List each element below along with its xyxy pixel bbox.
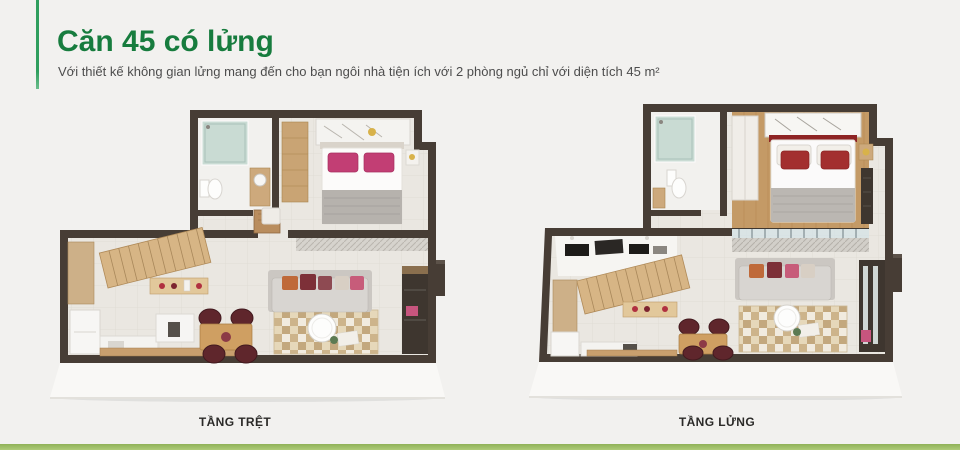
wood-bar	[587, 350, 677, 356]
shower-head	[206, 125, 210, 129]
dining-chair	[203, 345, 225, 363]
wall-cabinet	[68, 242, 94, 304]
ottoman	[262, 208, 280, 224]
open-book	[337, 331, 359, 347]
sofa-pillow	[767, 262, 782, 278]
floorplan-page: Căn 45 có lửng Với thiết kế không gian l…	[0, 0, 960, 450]
sofa-pillow	[801, 264, 815, 278]
dining-chair	[235, 345, 257, 363]
ground-floor-label: TẦNG TRỆT	[155, 415, 315, 429]
lamp	[409, 154, 415, 160]
centerpiece	[221, 332, 231, 342]
centerpiece	[699, 340, 707, 348]
understair-shelf	[623, 302, 677, 317]
toilet	[208, 179, 222, 199]
curtain-band	[296, 238, 428, 251]
sofa-pillow	[749, 264, 764, 278]
ac-ledge	[893, 254, 902, 292]
page-title: Căn 45 có lửng	[57, 26, 917, 58]
vanity	[653, 188, 665, 208]
pillow-left	[328, 153, 358, 172]
vase	[330, 336, 338, 344]
shower-head	[659, 120, 663, 124]
ground-floor-plan-drawing	[50, 110, 445, 402]
pillow-right	[364, 153, 394, 172]
bathroom	[651, 112, 720, 210]
fridge	[551, 332, 579, 356]
mezzanine-railing	[732, 227, 869, 238]
toilet	[672, 178, 686, 198]
ground-floor-plan	[50, 110, 445, 402]
dining-chair	[709, 319, 729, 335]
red-pillow	[821, 151, 849, 169]
ceiling-art-panel	[316, 119, 410, 145]
wall-cabinet	[553, 280, 577, 334]
ac-ledge-top	[436, 260, 445, 264]
wardrobe	[282, 122, 308, 202]
header: Căn 45 có lửng Với thiết kế không gian l…	[57, 26, 917, 80]
mezzanine-floor-label: TẦNG LỬNG	[637, 415, 797, 429]
accent-vertical-bar	[36, 0, 39, 89]
pink-cushion	[861, 330, 871, 342]
vase	[793, 328, 801, 336]
carpet-band	[732, 238, 869, 252]
art-panel	[765, 113, 861, 137]
footer-green-bar	[0, 444, 960, 450]
ac-ledge-top	[893, 254, 902, 258]
pink-cushion	[406, 306, 418, 316]
page-subtitle: Với thiết kế không gian lửng mang đến ch…	[58, 64, 917, 80]
understair-shelf	[150, 278, 208, 294]
blanket	[322, 190, 402, 224]
sofa-pillow	[350, 276, 364, 290]
quilt	[771, 188, 855, 222]
wardrobe	[861, 168, 873, 224]
mezzanine-floor-plan	[527, 104, 907, 400]
lamp	[863, 149, 870, 156]
dining-chair	[679, 319, 699, 335]
mezzanine-floor-plan-drawing	[527, 104, 907, 400]
window-pane	[873, 266, 878, 344]
red-pillow	[781, 151, 809, 169]
ac-ledge	[436, 260, 445, 296]
sofa-pillow	[318, 276, 332, 290]
dining-chair	[683, 346, 703, 360]
sofa-pillow	[335, 276, 349, 290]
sofa-pillow	[282, 276, 298, 290]
floor-slab	[529, 362, 902, 400]
sofa-pillow	[785, 264, 799, 278]
sofa-pillow	[300, 274, 316, 290]
floor-slab	[50, 363, 445, 402]
open-book	[798, 323, 819, 338]
living-room	[268, 266, 428, 354]
cooktop	[168, 322, 180, 337]
bathroom	[198, 118, 272, 210]
sink	[254, 174, 266, 186]
dining-chair	[713, 346, 733, 360]
bedroom	[732, 112, 873, 228]
